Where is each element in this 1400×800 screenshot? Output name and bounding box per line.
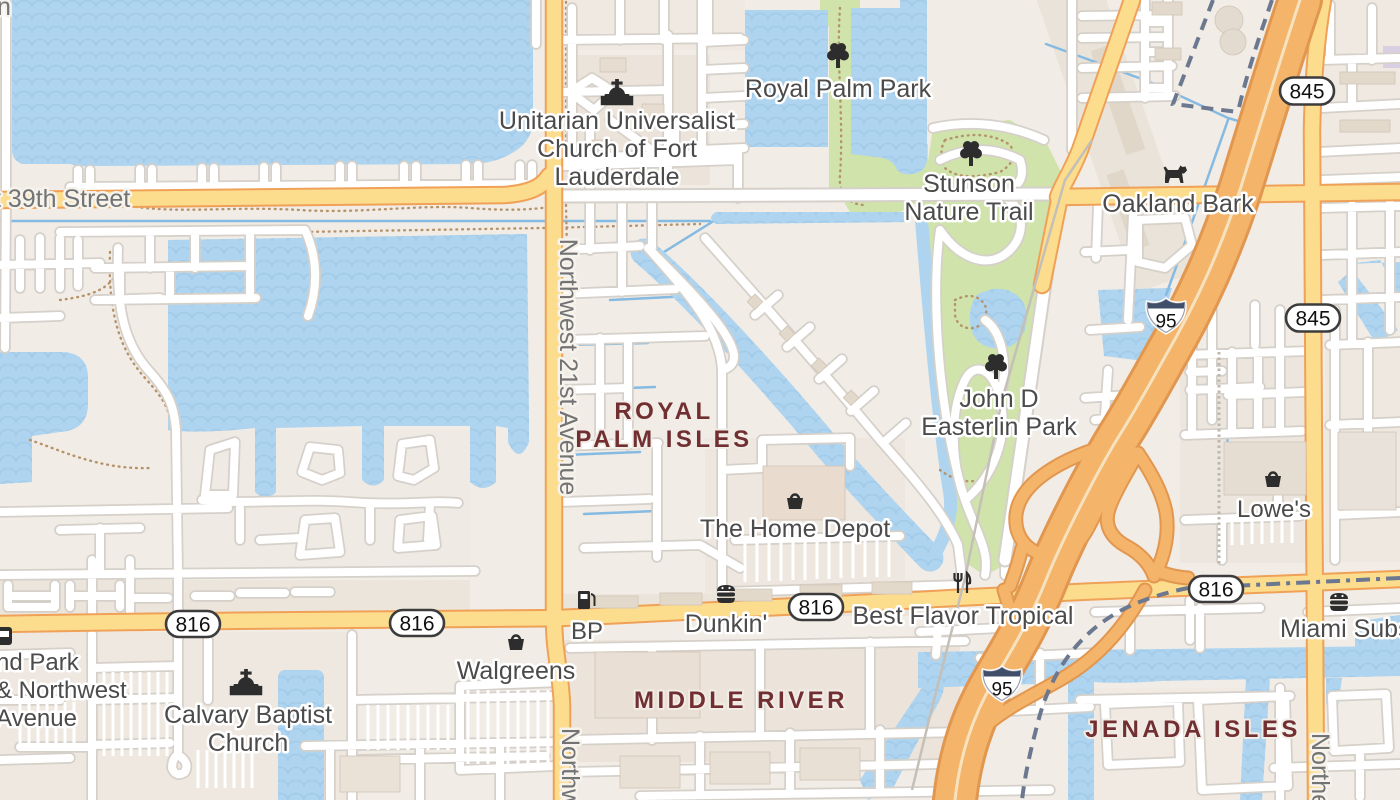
svg-text:Northeast: Northeast — [1306, 733, 1334, 800]
svg-text:JENADA ISLES: JENADA ISLES — [1085, 716, 1301, 743]
svg-text:Northwest 2: Northwest 2 — [556, 728, 584, 800]
svg-text:Walgreens: Walgreens — [457, 657, 576, 685]
svg-text:Lauderdale: Lauderdale — [554, 163, 679, 191]
svg-text:95: 95 — [1155, 312, 1176, 333]
svg-text:nd Park: nd Park — [0, 649, 80, 676]
svg-text:MIDDLE RIVER: MIDDLE RIVER — [634, 687, 848, 714]
svg-text:Oakland Bark: Oakland Bark — [1102, 190, 1254, 218]
svg-text:Church: Church — [208, 729, 289, 757]
svg-text:t 39th Street: t 39th Street — [0, 185, 130, 213]
svg-text:ROYAL: ROYAL — [614, 398, 713, 425]
svg-text:816: 816 — [1198, 579, 1233, 602]
svg-text:845: 845 — [1289, 81, 1324, 104]
svg-text:Unitarian Universalist: Unitarian Universalist — [499, 107, 735, 135]
svg-text:845: 845 — [1295, 308, 1330, 331]
svg-text:PALM ISLES: PALM ISLES — [575, 426, 752, 453]
svg-text:Calvary Baptist: Calvary Baptist — [164, 701, 332, 729]
svg-text:Miami Subs: Miami Subs — [1280, 615, 1400, 643]
svg-text:Best Flavor Tropical: Best Flavor Tropical — [853, 602, 1074, 630]
svg-text:Lowe's: Lowe's — [1237, 496, 1311, 523]
svg-text:Easterlin Park: Easterlin Park — [921, 413, 1077, 441]
svg-text:816: 816 — [399, 613, 434, 636]
svg-text:Stunson: Stunson — [923, 170, 1015, 198]
svg-text:Dunkin': Dunkin' — [685, 610, 768, 638]
svg-text:Church of Fort: Church of Fort — [537, 135, 697, 163]
svg-text:816: 816 — [798, 597, 833, 620]
svg-text:Nature Trail: Nature Trail — [904, 198, 1033, 226]
svg-text:The Home Depot: The Home Depot — [700, 515, 890, 543]
svg-text:n: n — [0, 0, 11, 21]
svg-text:Avenue: Avenue — [0, 705, 77, 732]
svg-text:John D: John D — [959, 385, 1038, 413]
svg-text:95: 95 — [991, 680, 1012, 701]
svg-text:Northwest 21st Avenue: Northwest 21st Avenue — [554, 239, 582, 496]
svg-text:& Northwest: & Northwest — [0, 677, 127, 704]
svg-text:816: 816 — [175, 614, 210, 637]
svg-text:BP: BP — [571, 618, 603, 645]
svg-text:Royal Palm Park: Royal Palm Park — [745, 75, 932, 103]
